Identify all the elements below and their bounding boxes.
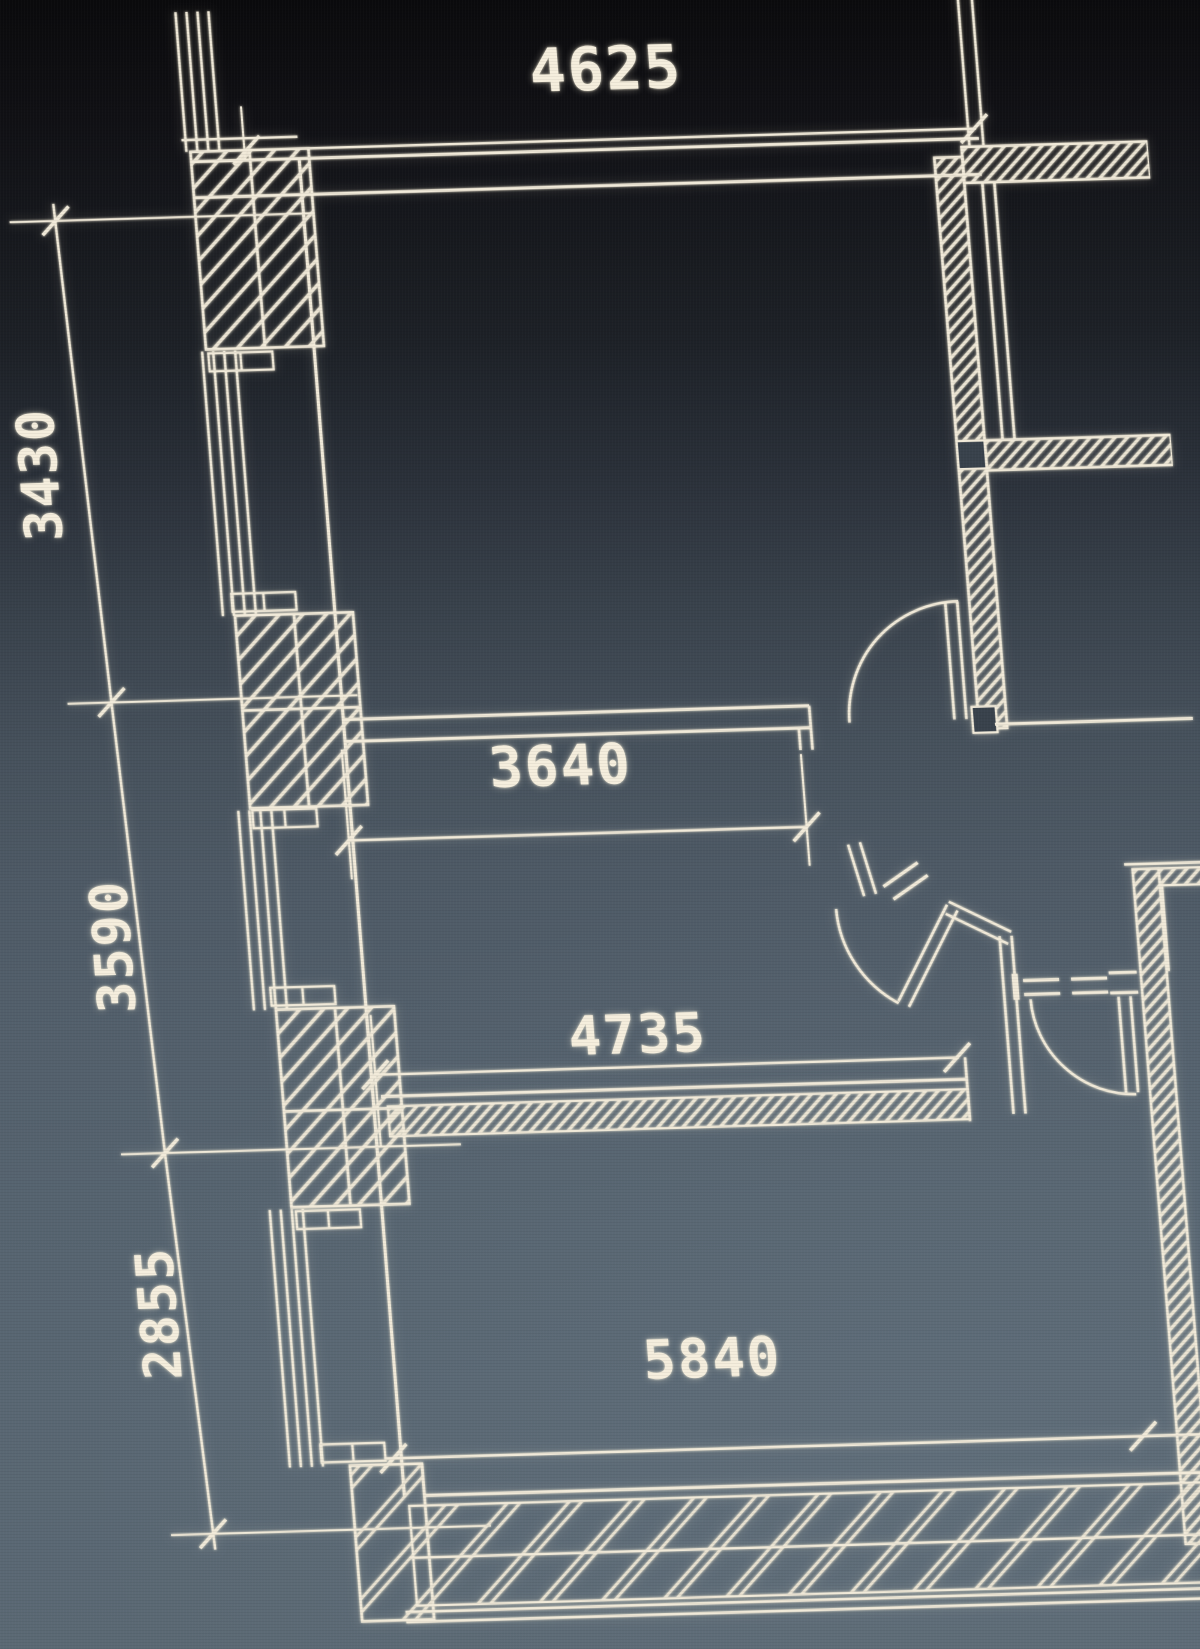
dimension-bottom <box>378 1420 1200 1473</box>
bottom-wall <box>350 1439 1200 1623</box>
opening-dash <box>882 863 920 887</box>
left-window-wall <box>171 8 432 1499</box>
door-bathroom <box>1015 970 1147 1097</box>
dimension-label-interior-lower: 4735 <box>485 1001 790 1070</box>
door-upper <box>840 601 967 722</box>
dimension-label-top: 4625 <box>438 35 773 105</box>
dimension-label-bottom: 5840 <box>560 1325 865 1394</box>
wall-pier <box>190 148 409 1208</box>
floor-plan: 4625 3430 3590 2855 3640 4735 5840 <box>0 0 1200 1649</box>
door-swing-arc <box>840 601 967 722</box>
vestibule-doorway <box>831 838 1026 1119</box>
cad-screen-photo: 4625 3430 3590 2855 3640 4735 5840 <box>0 0 1200 1649</box>
dimension-label-interior-upper: 3640 <box>408 733 713 802</box>
opening-dash <box>892 875 930 899</box>
interior-wall-lower <box>379 1057 970 1138</box>
door-swing-arc <box>836 907 899 1004</box>
